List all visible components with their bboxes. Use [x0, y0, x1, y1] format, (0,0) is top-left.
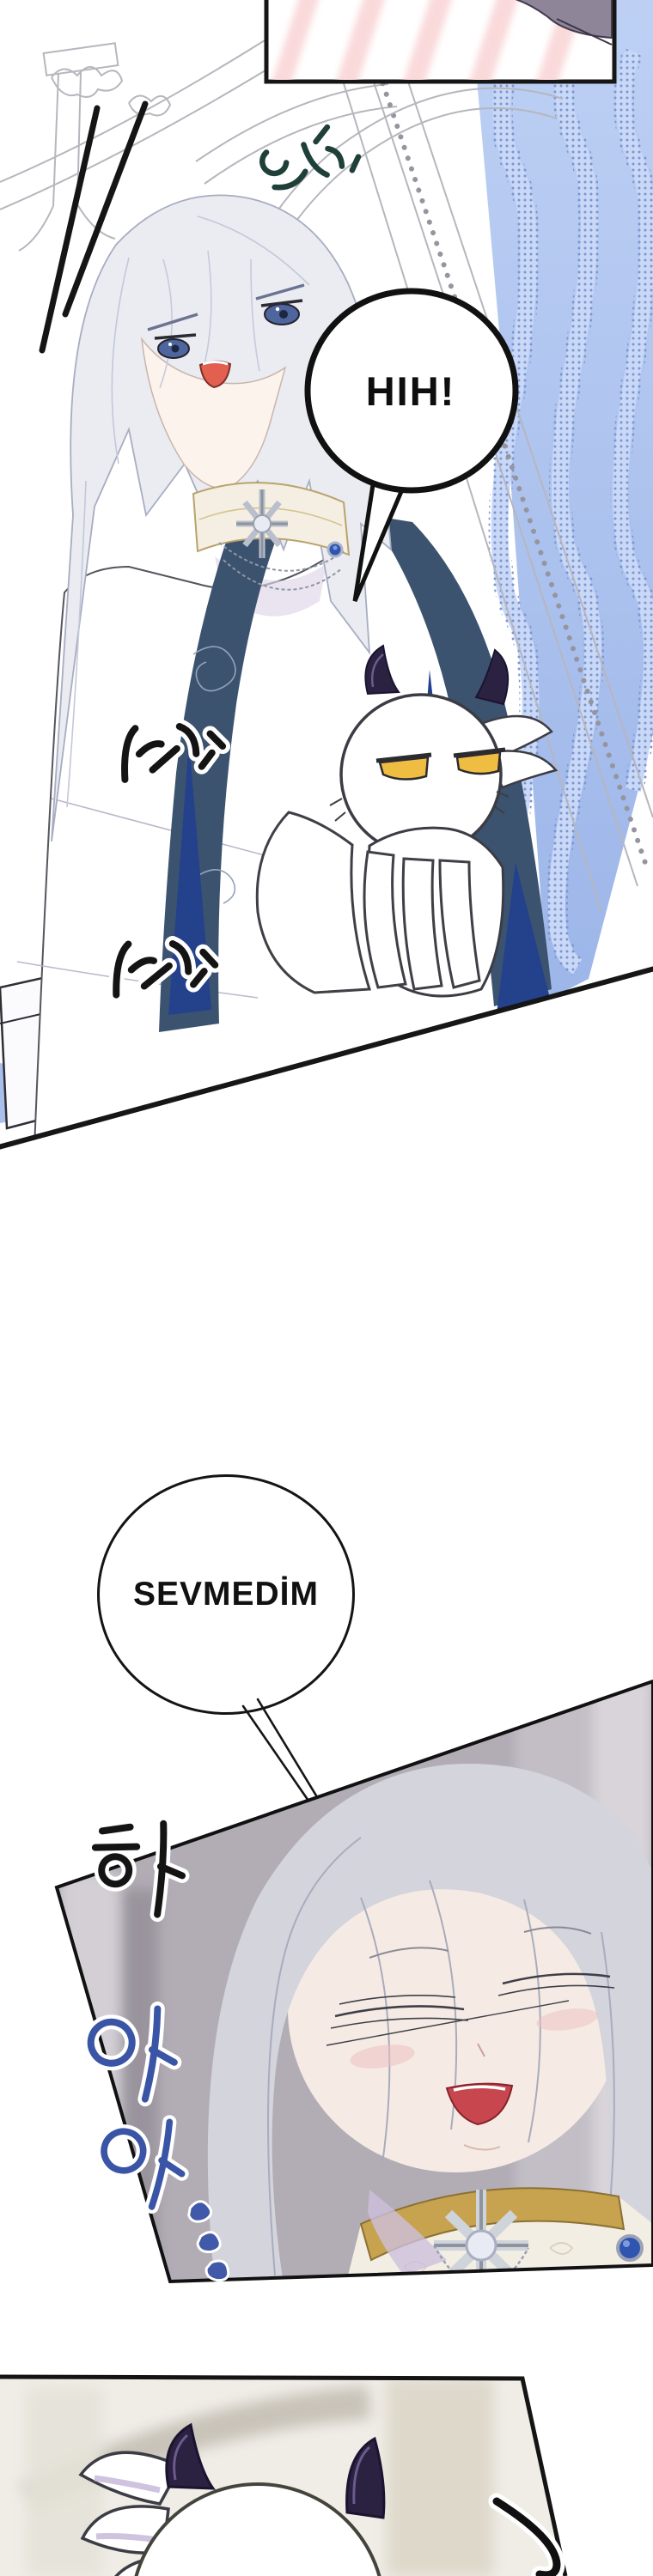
panel-throne-room: [0, 0, 653, 1151]
speech-text-sevmedim: SEVMEDİM: [133, 1576, 319, 1613]
gem-brooch-2: [618, 2236, 642, 2260]
webtoon-page: HIH! SEVMEDİM: [0, 0, 653, 2576]
panel-smiling-duke: [0, 1674, 653, 2293]
fingers: [364, 852, 479, 989]
gem-brooch: [328, 543, 342, 556]
speech-text-hih: HIH!: [325, 359, 497, 422]
panel-cat-closeup: [0, 2353, 653, 2576]
